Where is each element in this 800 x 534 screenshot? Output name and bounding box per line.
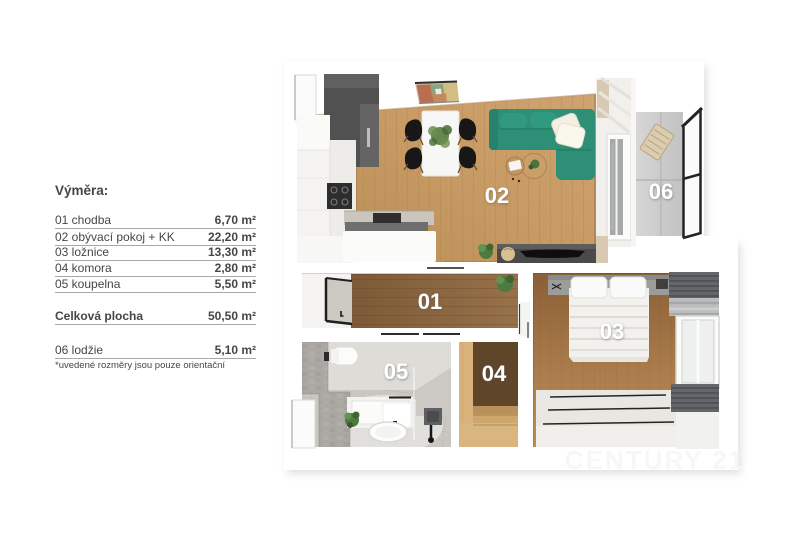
svg-text:05: 05	[384, 359, 408, 384]
svg-text:04: 04	[482, 361, 507, 386]
svg-text:03: 03	[600, 319, 624, 344]
svg-text:CENTURY 21: CENTURY 21	[565, 445, 745, 475]
svg-text:02: 02	[485, 183, 509, 208]
svg-text:06: 06	[649, 179, 673, 204]
svg-text:01: 01	[418, 289, 442, 314]
